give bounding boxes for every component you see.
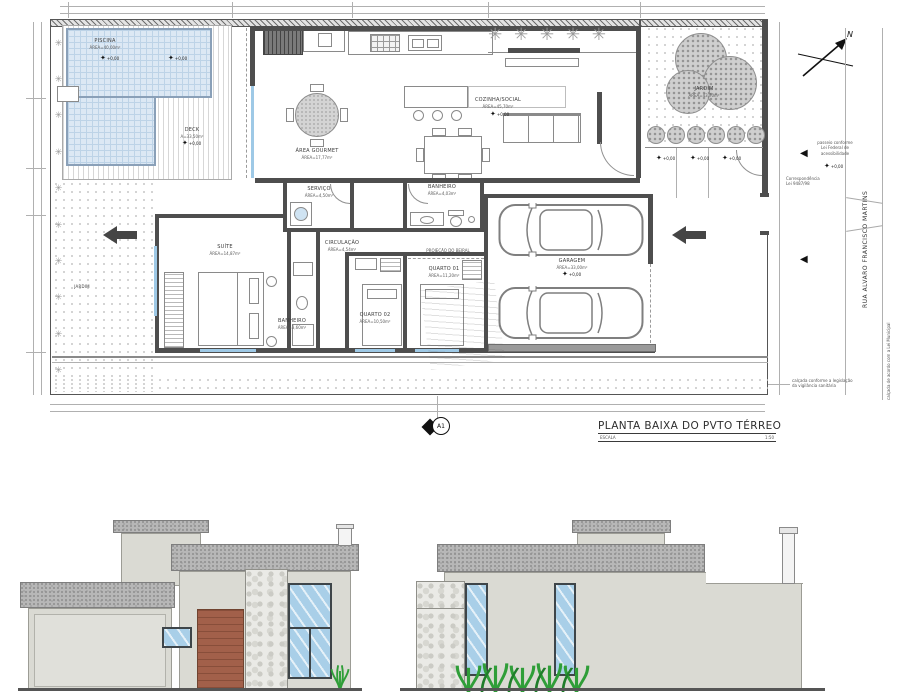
- room-area: ÁREA=10,50m²: [348, 319, 402, 324]
- corridor-right-wall: [345, 252, 349, 352]
- chair: [416, 148, 424, 162]
- level-marker-icon: ✦: [182, 141, 188, 147]
- washer-drum: [294, 207, 308, 221]
- level-marker: ✦ +0,00: [722, 156, 741, 162]
- garage-top-wall: [484, 194, 652, 198]
- level-marker-icon: ✦: [824, 164, 830, 170]
- side-elevation: [395, 500, 923, 692]
- gourmet-left-wall: [250, 26, 255, 86]
- room-label-deck: DECK A=33,50m²: [166, 127, 218, 139]
- projection-note: PROJEÇÃO DO BEIRAL: [408, 248, 488, 253]
- garage-right-wall: [648, 194, 653, 264]
- pillow: [249, 313, 259, 339]
- garage-door-panel: [34, 614, 166, 687]
- room-area: ÁREA=40,00m²: [75, 45, 135, 50]
- level-value: +0,00: [175, 57, 187, 61]
- level-value: +0,00: [497, 113, 509, 117]
- level-value: +0,00: [107, 57, 119, 61]
- kitchen-sink: [408, 35, 442, 51]
- dimension-tick: [640, 2, 641, 18]
- dimension-line: [33, 22, 34, 395]
- level-marker: ✦ +0,00: [690, 156, 709, 162]
- room-label-banheiro-social: BANHEIRO ÁREA=4,03m²: [416, 184, 468, 196]
- dimension-line: [779, 22, 780, 395]
- room-area: ÁREA=14,87m²: [195, 251, 255, 256]
- roof-slab: [113, 520, 209, 533]
- garage-dashed-edge: [650, 264, 651, 348]
- driveway-gate-opening: [761, 197, 770, 231]
- room-label-suite: SUÍTE ÁREA=14,87m²: [195, 244, 255, 256]
- level-marker-icon: ✦: [656, 156, 662, 162]
- slope-arrow-icon: ◀: [800, 148, 808, 159]
- room-label-circulacao: CIRCULAÇÃO ÁREA=4,54m²: [314, 240, 370, 252]
- note-line: da vigilância sanitária: [792, 383, 866, 388]
- note-line: acessibilidade: [806, 151, 864, 156]
- level-value: +0,00: [189, 142, 201, 146]
- wardrobe: [164, 272, 184, 348]
- front-wall-line: [52, 356, 768, 358]
- room-area: ÁREA=4,54m²: [314, 247, 370, 252]
- round-table: [295, 93, 339, 137]
- ground-line: [18, 688, 362, 691]
- section-marker-circle: A1: [432, 417, 450, 435]
- vent-pipe-cap: [779, 527, 798, 534]
- small-window: [162, 627, 192, 648]
- slope-arrow-icon: ◀: [800, 254, 808, 265]
- band-wall: [283, 178, 287, 232]
- shower-drain: [468, 216, 475, 223]
- level-marker: ✦ +0,00: [490, 112, 509, 118]
- room-label-piscina: PISCINA ÁREA=40,00m²: [75, 38, 135, 50]
- level-marker: ✦ +0,00: [562, 272, 581, 278]
- chair: [432, 128, 446, 136]
- scale-value: 1:50: [765, 435, 774, 440]
- washing-machine: [290, 202, 312, 226]
- dimension-tick: [232, 2, 233, 18]
- vent-pipe: [338, 527, 352, 546]
- chair: [286, 108, 294, 122]
- dimension-tick: [26, 98, 46, 99]
- level-marker: ✦ +0,00: [824, 164, 843, 170]
- stool: [413, 110, 424, 121]
- room-label-social: COZINHA/SOCIAL ÁREA=45,70m²: [462, 97, 534, 109]
- bush: [647, 126, 665, 144]
- window: [355, 349, 395, 352]
- planter-row: ✳ ✳ ✳ ✳ ✳: [488, 27, 606, 49]
- window-mullion: [309, 627, 311, 677]
- plant-icon: ✳: [540, 27, 554, 49]
- level-value: +0,00: [663, 157, 675, 161]
- level-marker-icon: ✦: [168, 56, 174, 62]
- bush: [667, 126, 685, 144]
- plant-icon: ✳: [566, 27, 580, 49]
- room-area: ÁREA=4,50m²: [293, 193, 345, 198]
- north-label: N: [847, 30, 853, 39]
- dining-table: [424, 136, 482, 174]
- watermark: [420, 280, 505, 370]
- entry-arrow-icon: [103, 226, 137, 244]
- scale-row: ESCALA 1:50: [598, 434, 776, 442]
- front-elevation: [0, 500, 380, 692]
- dimension-tick: [68, 2, 69, 18]
- bush: [727, 126, 745, 144]
- plant-icon: ✳: [514, 27, 528, 49]
- toilet-bowl: [450, 216, 462, 227]
- plant-icon: ✳: [592, 27, 606, 49]
- garden-edge: [645, 147, 763, 148]
- entry-door: [197, 609, 244, 689]
- dimension-line: [41, 22, 42, 395]
- entry-arrow-icon: [672, 226, 706, 244]
- chair: [310, 84, 324, 92]
- sliding-door-panel: [508, 48, 580, 53]
- driveway-joint: [676, 148, 677, 198]
- front-garden-band: [52, 376, 768, 393]
- car: [498, 286, 644, 340]
- room-area: ÁREA=4,03m²: [416, 191, 468, 196]
- blanket-line: [237, 273, 238, 345]
- dimension-line: [60, 6, 765, 7]
- architectural-drawing-sheet: ✳ ✳ ✳ ✳ ✳ ✳ ✳ ✳ ✳ ✳ JARDIM: [0, 0, 923, 692]
- tv-panel: [505, 58, 579, 67]
- grass-plants: [455, 648, 590, 692]
- dimension-tick: [26, 168, 46, 169]
- roof-slab: [20, 582, 175, 608]
- level-marker: ✦ +0,00: [100, 56, 119, 62]
- sink-bowl: [412, 39, 424, 48]
- sink-bowl: [427, 39, 439, 48]
- accessibility-note: passeio conforme Lei Federal de acessibi…: [806, 140, 864, 156]
- room-area: A=33,50m²: [166, 134, 218, 139]
- roof-slab: [437, 544, 705, 572]
- window: [200, 349, 256, 352]
- garage-door-strip: [488, 344, 656, 352]
- pillow: [367, 289, 397, 299]
- north-arrow-icon: [795, 32, 857, 82]
- kitchen-island: [404, 86, 468, 108]
- wardrobe: [380, 258, 401, 272]
- band-top-wall: [255, 178, 640, 183]
- sidewalk-note: calçada de acordo com a Lei Municipal: [886, 288, 891, 400]
- suite-top-wall: [155, 214, 287, 218]
- ground-line: [400, 688, 825, 691]
- bathroom-vanity: [293, 262, 313, 276]
- stone-column: [245, 569, 288, 689]
- dimension-line: [50, 404, 765, 405]
- room-area: ÁREA=43,70m²: [676, 93, 732, 98]
- band-wall: [350, 178, 354, 232]
- stool: [432, 110, 443, 121]
- nightstand: [266, 336, 277, 347]
- vent-pipe: [782, 530, 795, 584]
- room-label-garagem: GARAGEM ÁREA=33,00m²: [542, 258, 602, 270]
- bush: [747, 126, 765, 144]
- eave-projection-dashed: [408, 258, 484, 259]
- title-block: PLANTA BAIXA DO PVTO TÉRREO ESCALA 1:50: [598, 420, 776, 442]
- gourmet-glass-door: [251, 86, 254, 178]
- room-area: ÁREA=11,20m²: [412, 273, 476, 278]
- sink-oval: [420, 216, 434, 224]
- note-line: Lei 9487/98: [786, 181, 836, 186]
- bush: [707, 126, 725, 144]
- plant: [328, 652, 352, 690]
- dimension-tick: [488, 2, 489, 18]
- chair: [340, 108, 348, 122]
- dimension-tick: [352, 2, 353, 18]
- street-curb: [882, 28, 883, 400]
- room-area: ÁREA=33,00m²: [542, 265, 602, 270]
- nightstand: [266, 276, 277, 287]
- pool-ladder: [57, 86, 79, 102]
- level-marker-icon: ✦: [690, 156, 696, 162]
- gourmet-sink: [318, 33, 332, 47]
- chair: [482, 148, 490, 162]
- room-divider-wall: [403, 252, 407, 352]
- dimension-tick: [26, 352, 46, 353]
- scale-label: ESCALA: [600, 435, 616, 440]
- chair: [458, 128, 472, 136]
- level-value: +0,00: [831, 165, 843, 169]
- correspondence-note: Correspondência Lei 9487/98: [786, 176, 836, 187]
- toilet-bowl: [296, 296, 308, 310]
- vent-pipe-cap: [336, 524, 354, 529]
- sanitary-note: calçada conforme a legislação da vigilân…: [792, 378, 866, 389]
- level-marker-icon: ✦: [490, 112, 496, 118]
- projection-text: PROJEÇÃO DO BEIRAL: [426, 248, 469, 253]
- room-area: ÁREA=3,60m²: [268, 325, 316, 330]
- dimension-line: [60, 13, 765, 14]
- room-label-jardim: JARDIM ÁREA=43,70m²: [676, 86, 732, 98]
- cooktop: [370, 34, 400, 52]
- car: [498, 203, 644, 257]
- glass-door-panel: [597, 92, 602, 144]
- section-marker-label: A1: [437, 423, 445, 430]
- level-marker-icon: ✦: [562, 272, 568, 278]
- roof-slab: [572, 520, 671, 533]
- suite-right-wall: [287, 228, 291, 352]
- stone-joint-line: [417, 608, 464, 609]
- street-curb: [845, 28, 846, 395]
- room-label-quarto02: QUARTO 02 ÁREA=10,50m²: [348, 312, 402, 324]
- large-window: [288, 583, 332, 679]
- desk: [355, 258, 377, 270]
- room-label-quarto01: QUARTO 01 ÁREA=11,20m²: [412, 266, 476, 278]
- tree: [703, 56, 757, 110]
- plant-icon: ✳: [488, 27, 502, 49]
- pillow: [249, 278, 259, 304]
- plan-title: PLANTA BAIXA DO PVTO TÉRREO: [598, 420, 776, 434]
- room-label-servico: SERVIÇO ÁREA=4,50m²: [293, 186, 345, 198]
- roof-slab: [171, 544, 359, 571]
- leader-line: [768, 384, 790, 385]
- roof-projection-dashed: [246, 28, 247, 178]
- level-value: +0,00: [697, 157, 709, 161]
- walkway-line: [52, 362, 768, 363]
- sofa: [503, 113, 581, 143]
- room-label-banheiro-suite: BANHEIRO ÁREA=3,60m²: [268, 318, 316, 330]
- dimension-tick: [26, 215, 46, 216]
- room-label-jardim-lateral: JARDIM: [60, 284, 104, 289]
- floor-plan: ✳ ✳ ✳ ✳ ✳ ✳ ✳ ✳ ✳ ✳ JARDIM: [0, 0, 923, 460]
- bathroom-vanity: [410, 212, 444, 226]
- room-name: JARDIM: [60, 284, 104, 289]
- level-marker: ✦ +0,00: [656, 156, 675, 162]
- room-label-gourmet: ÁREA GOURMET ÁREA=17,77m²: [272, 148, 362, 160]
- gate-post: [760, 193, 769, 197]
- level-marker: ✦ +0,00: [182, 141, 201, 147]
- level-marker-icon: ✦: [100, 56, 106, 62]
- stool: [451, 110, 462, 121]
- gate-post: [760, 231, 769, 235]
- level-marker-icon: ✦: [722, 156, 728, 162]
- dimension-line: [50, 411, 765, 412]
- bush: [687, 126, 705, 144]
- band-wall: [403, 178, 407, 232]
- level-value: +0,00: [729, 157, 741, 161]
- barbecue-grill: [263, 29, 303, 55]
- chair: [310, 139, 324, 147]
- room-area: ÁREA=17,77m²: [272, 155, 362, 160]
- room-area: ÁREA=45,70m²: [462, 104, 534, 109]
- level-marker: ✦ +0,00: [168, 56, 187, 62]
- level-value: +0,00: [569, 273, 581, 277]
- double-bed: [198, 272, 264, 346]
- suite-window: [154, 246, 157, 316]
- social-right-wall: [636, 26, 641, 178]
